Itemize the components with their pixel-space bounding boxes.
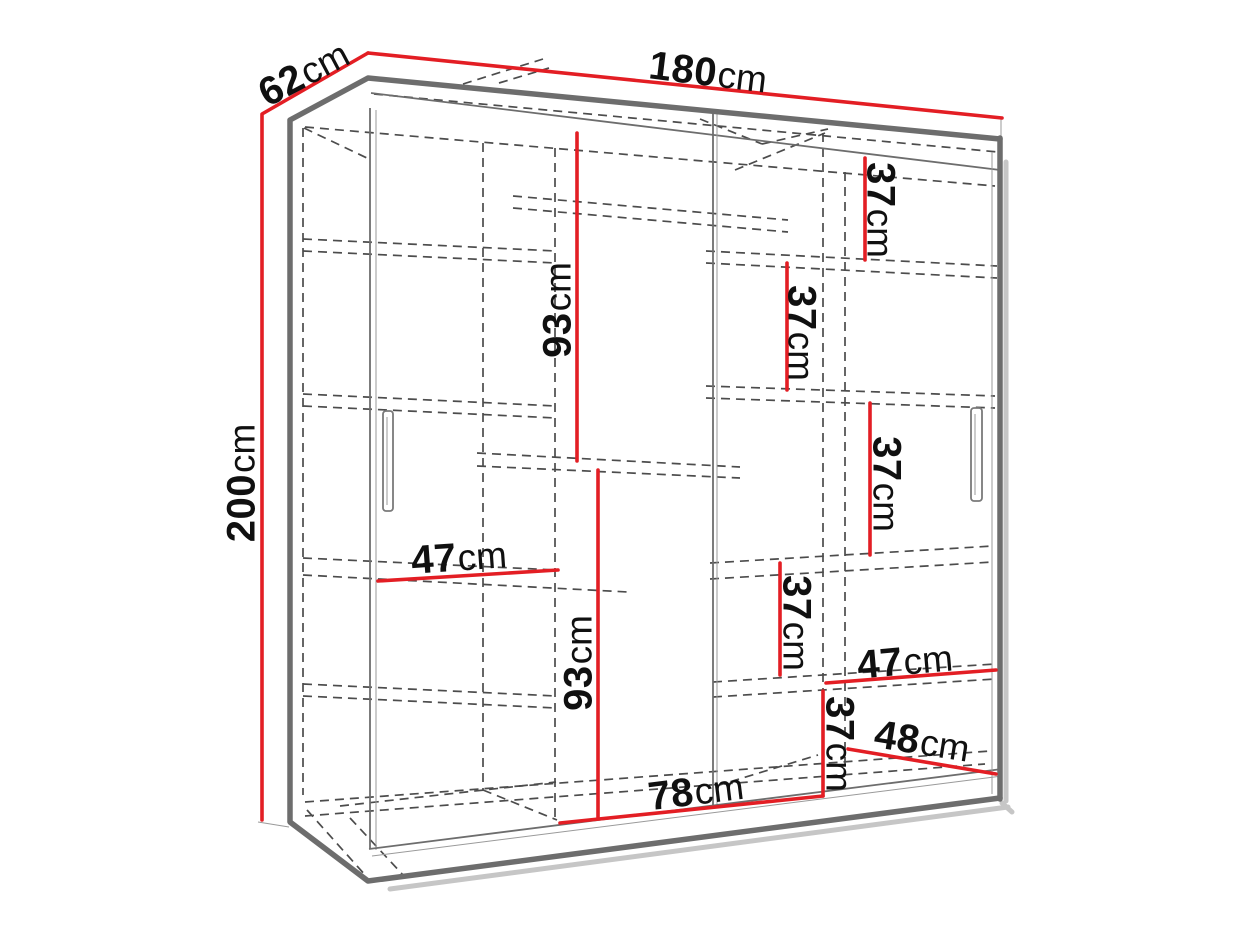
dim-unit: cm <box>692 766 746 813</box>
dim-unit: cm <box>456 534 508 578</box>
dim-value: 37 <box>818 696 862 742</box>
dim-unit: cm <box>538 262 579 311</box>
dim-label-inner-height-lower-93: 93cm <box>557 615 602 711</box>
dim-unit: cm <box>715 54 769 101</box>
dim-value: 180 <box>647 43 720 95</box>
dim-unit: cm <box>559 615 600 664</box>
dim-unit: cm <box>781 332 822 381</box>
dim-unit: cm <box>902 637 955 682</box>
dimension-line-depth-and-height <box>262 53 368 820</box>
dim-label-gap-37-1: 37cm <box>858 162 903 258</box>
dim-unit: cm <box>222 424 263 473</box>
dim-unit: cm <box>866 483 907 532</box>
dim-label-height-200: 200cm <box>220 424 265 543</box>
dim-value: 37 <box>775 575 819 621</box>
wardrobe-drawing <box>0 0 1244 933</box>
dim-label-inner-height-upper-93: 93cm <box>536 262 581 358</box>
dim-label-gap-37-4: 37cm <box>774 575 819 671</box>
dim-value: 48 <box>871 712 923 763</box>
dim-unit: cm <box>776 622 817 671</box>
dim-value: 37 <box>780 285 824 331</box>
dim-unit: cm <box>819 743 860 792</box>
wardrobe-dimension-diagram: 62cm 180cm 200cm 93cm 93cm 37cm 37cm 37c… <box>0 0 1244 933</box>
dim-value: 37 <box>859 162 903 208</box>
dim-value: 93 <box>536 312 580 358</box>
dim-value: 37 <box>865 436 909 482</box>
dim-label-shelf-width-47-right: 47cm <box>855 635 954 688</box>
dim-unit: cm <box>860 209 901 258</box>
door-handle-left <box>383 411 393 511</box>
dim-value: 93 <box>557 665 601 711</box>
dim-value: 200 <box>220 474 264 542</box>
dim-label-gap-37-3: 37cm <box>864 436 909 532</box>
dim-label-gap-37-5: 37cm <box>817 696 862 792</box>
dim-label-shelf-width-47-left: 47cm <box>410 532 509 584</box>
dim-value: 78 <box>646 770 697 819</box>
dim-value: 47 <box>855 640 904 688</box>
dim-label-gap-37-2: 37cm <box>779 285 824 381</box>
dim-value: 47 <box>410 536 458 583</box>
dim-unit: cm <box>917 722 972 770</box>
door-handle-right <box>971 408 982 501</box>
